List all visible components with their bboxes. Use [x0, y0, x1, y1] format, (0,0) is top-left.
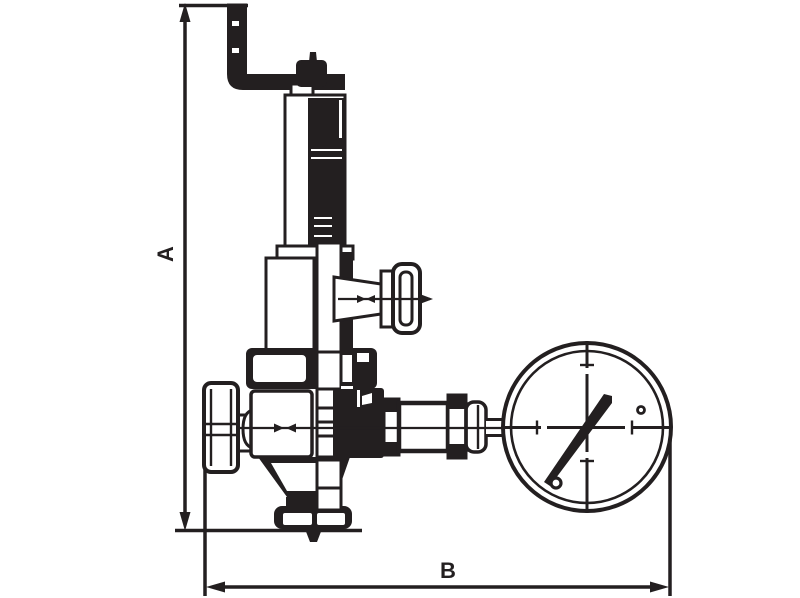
technical-drawing-page: A B [0, 0, 800, 598]
valve-drawing [0, 0, 800, 598]
inlet-pipe [227, 4, 345, 91]
valve-body [243, 391, 312, 457]
dimension-a-label: A [152, 239, 180, 269]
dimension-b-label: B [433, 558, 463, 584]
diaphragm-flange [246, 348, 377, 389]
gauge-fittings [384, 395, 503, 458]
pressure-gauge [503, 341, 671, 513]
outlet-hex-union [333, 386, 384, 458]
thread-hatching [308, 98, 345, 250]
